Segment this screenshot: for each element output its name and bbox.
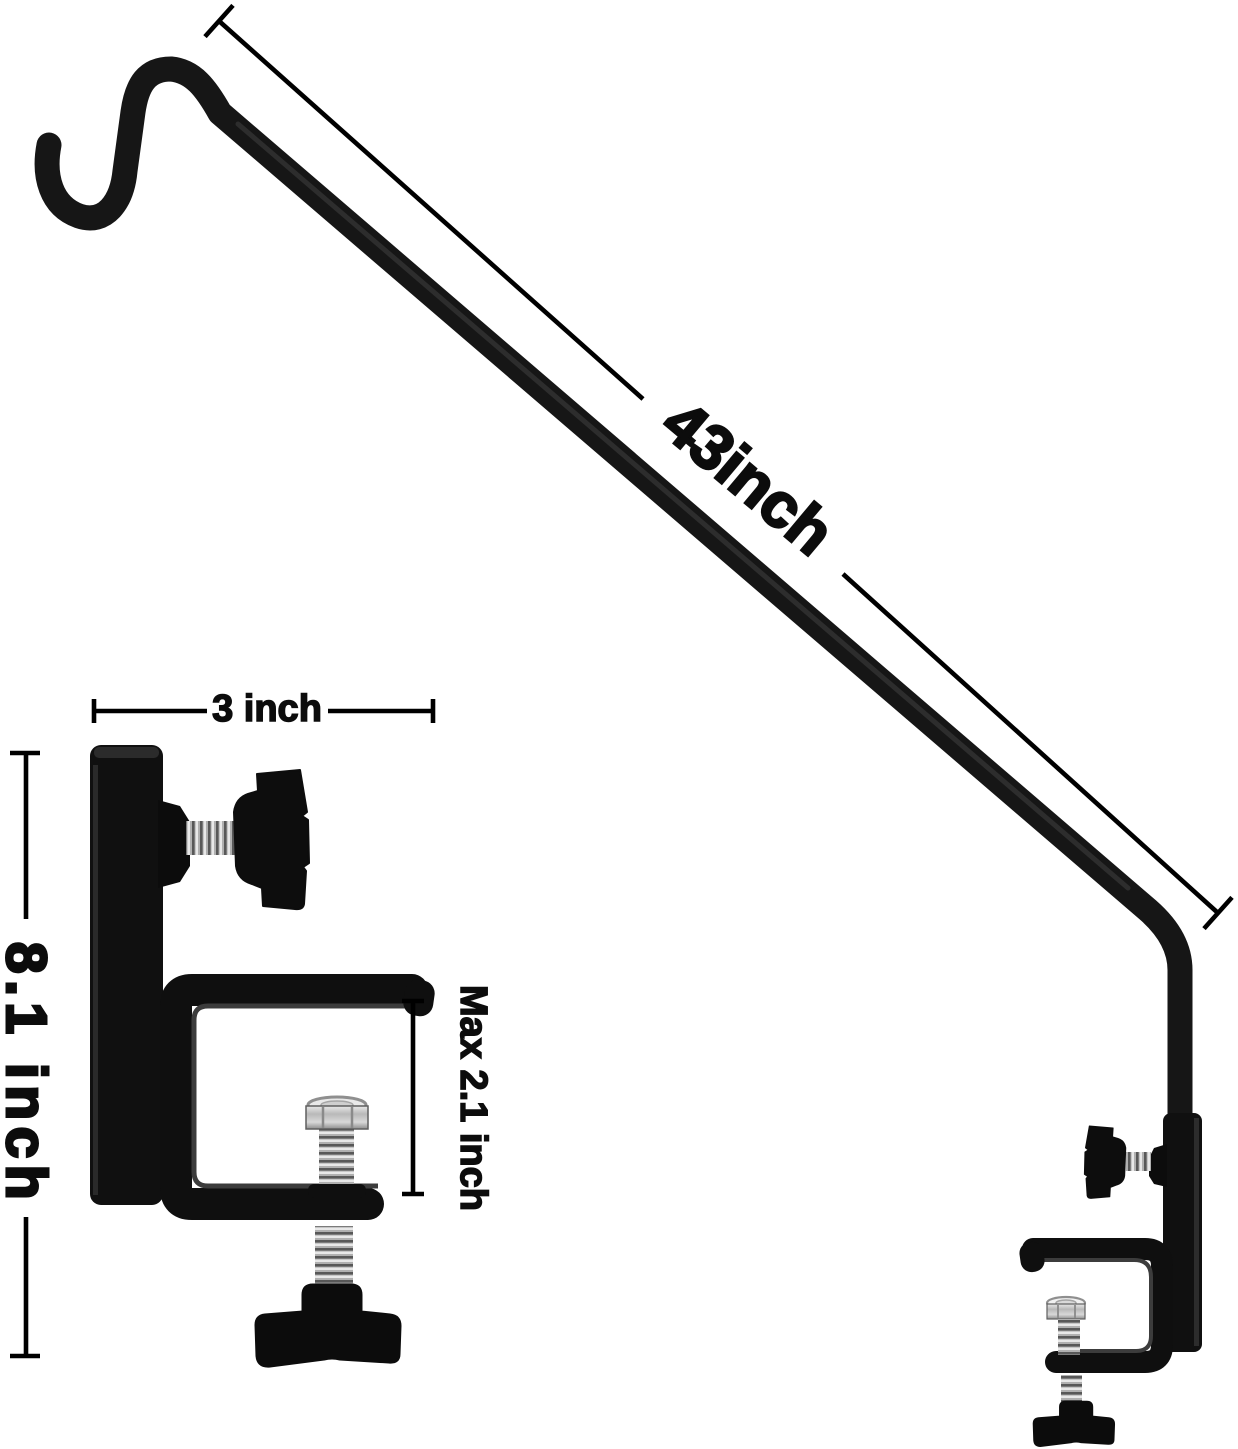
svg-text:Max 2.1 inch: Max 2.1 inch — [452, 985, 494, 1211]
svg-text:8.1 inch: 8.1 inch — [0, 942, 58, 1206]
svg-text:3 inch: 3 inch — [212, 688, 322, 730]
